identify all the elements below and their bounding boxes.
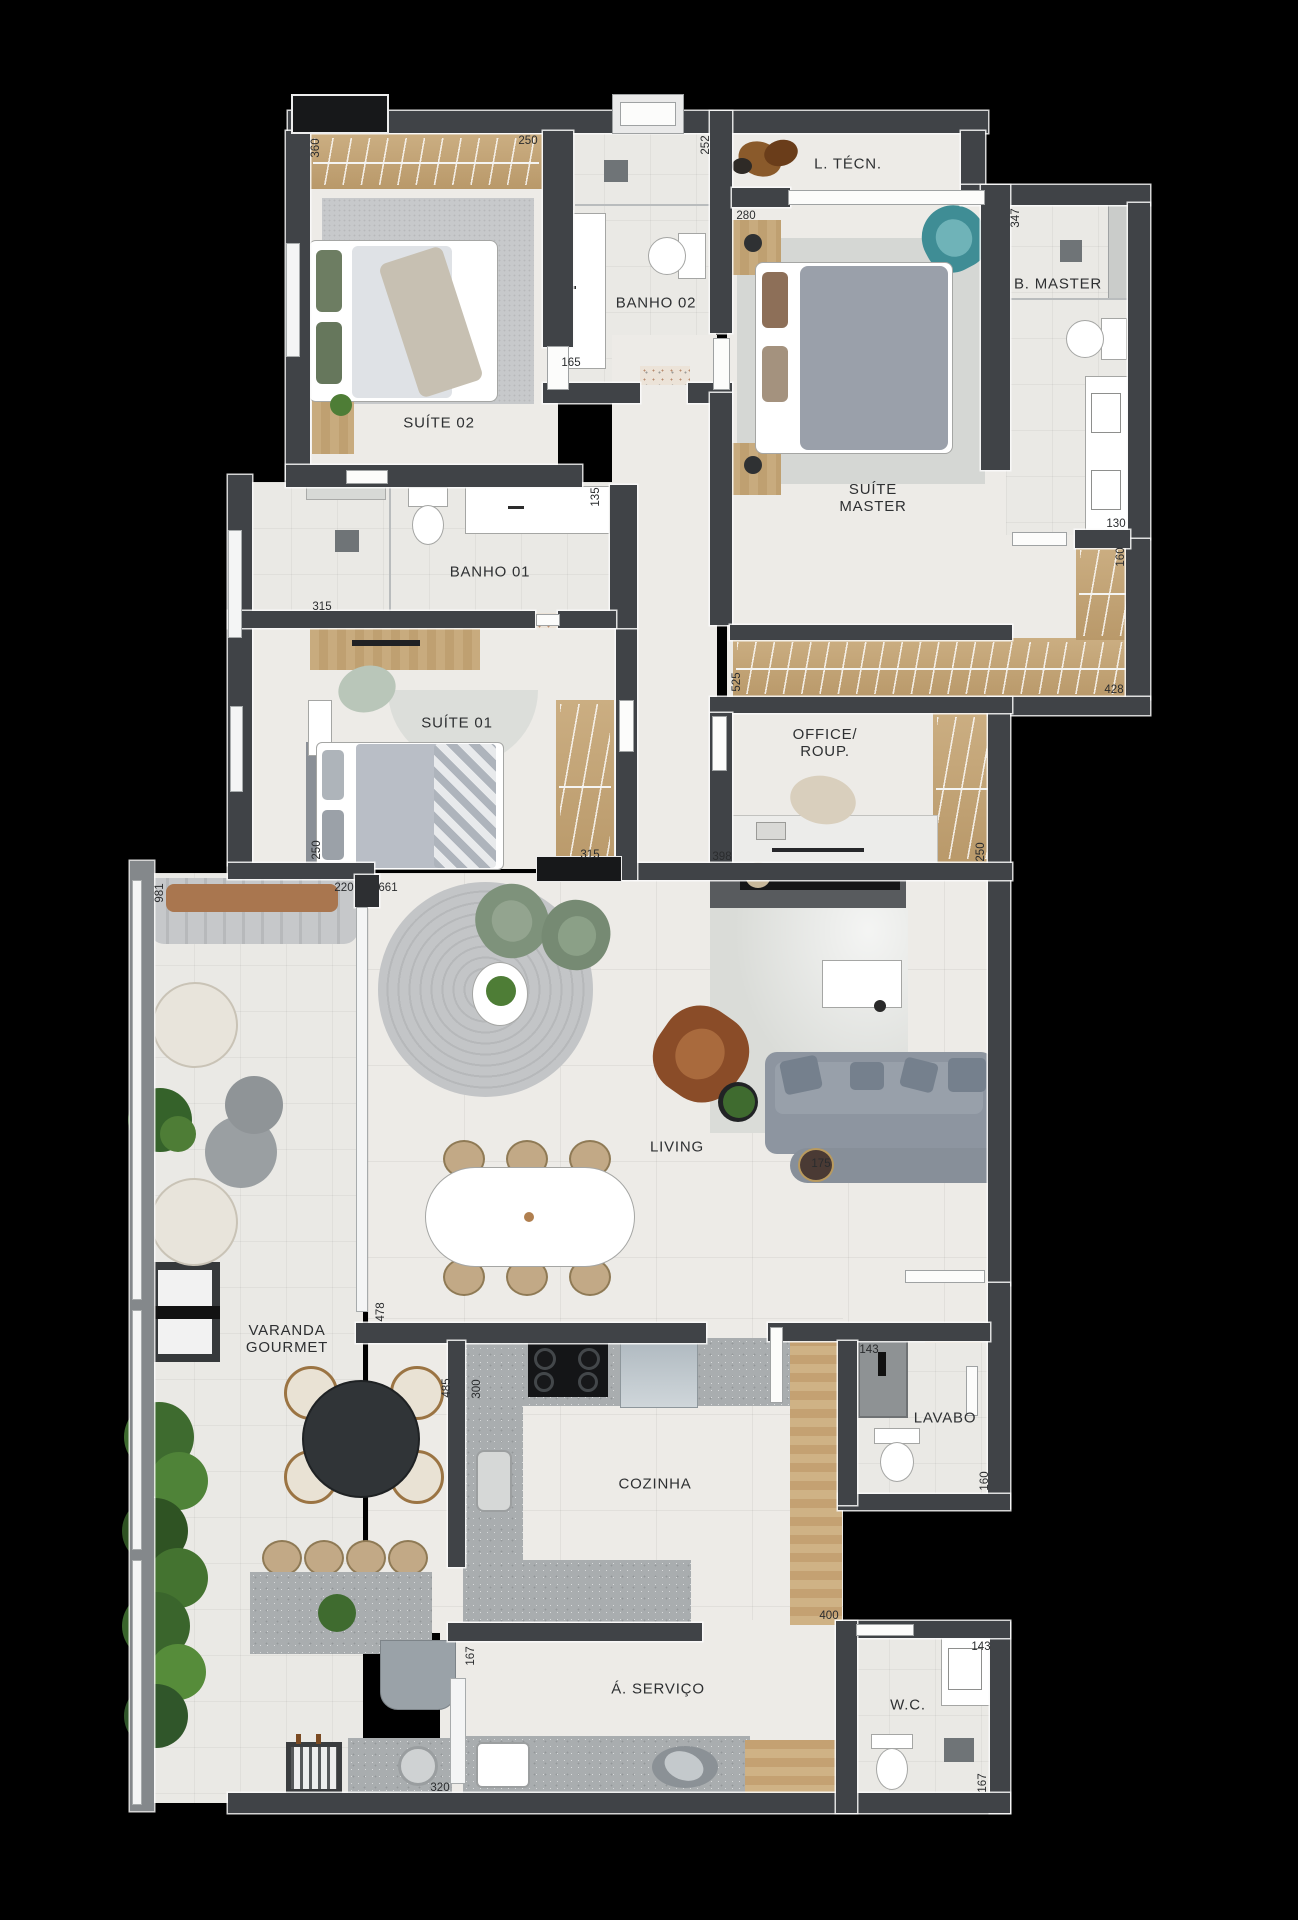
- plant-suite-02: [330, 394, 352, 416]
- glazing-varanda-2: [132, 1310, 142, 1550]
- room-label-suite-master: SUÍTEMASTER: [839, 481, 906, 516]
- wall-ltecn-stub: [732, 188, 790, 207]
- wardrobe-suite-01: [556, 700, 614, 872]
- shower-head-wc: [944, 1738, 974, 1762]
- round-sink-varanda: [398, 1746, 438, 1786]
- wall-suite02-bottom: [286, 465, 582, 487]
- sofa-pillow-2: [850, 1062, 884, 1090]
- dimension-label: 981: [154, 883, 166, 902]
- door-suite-02: [346, 470, 388, 484]
- wall-banho02-ltecn: [710, 111, 732, 333]
- dimension-label: 315: [580, 849, 599, 861]
- patio-round-table: [302, 1380, 420, 1498]
- wall-lavabo-bottom: [838, 1494, 1010, 1510]
- window-banho-01: [228, 530, 242, 638]
- room-label-suite-02: SUÍTE 02: [403, 414, 474, 431]
- plant-island: [318, 1594, 356, 1632]
- wall-banho01-bottom-b: [558, 611, 616, 628]
- bar-stool-4: [388, 1540, 428, 1576]
- dimension-label: 428: [1104, 684, 1123, 696]
- shower-glass-b-master: [1008, 298, 1132, 300]
- sliding-door-l-tecn: [788, 190, 985, 205]
- dimension-label: 160: [1115, 547, 1127, 566]
- pillow-green-2: [316, 322, 342, 384]
- dimension-label: 347: [1010, 208, 1022, 227]
- dimension-label: 485: [441, 1378, 453, 1397]
- bar-stool-1: [262, 1540, 302, 1576]
- bar-fridge: [380, 1640, 456, 1710]
- toilet-tank-wc: [871, 1734, 913, 1749]
- dimension-label: 160: [979, 1471, 991, 1490]
- door-suite-master: [713, 338, 730, 390]
- centerpiece: [524, 1212, 534, 1222]
- dimension-label: 130: [1106, 518, 1125, 530]
- toilet-b-master: [1066, 320, 1104, 358]
- vanity-banho-01: [465, 486, 610, 534]
- plant-varanda-mid-2: [160, 1116, 196, 1152]
- tanque-sink: [476, 1742, 530, 1788]
- sliding-glass-varanda: [356, 907, 368, 1312]
- monitor-suite-01: [352, 640, 420, 646]
- toilet-banho-02: [648, 237, 686, 275]
- sofa-pillow-4: [948, 1058, 986, 1092]
- floor-plan: SUÍTE 02BANHO 02L. TÉCN.SUÍTEMASTERB. MA…: [0, 0, 1298, 1920]
- room-label-banho-01: BANHO 01: [450, 563, 531, 580]
- dimension-label: 250: [518, 135, 537, 147]
- dimension-label: 165: [561, 357, 580, 369]
- cabinet-varanda-panel-1: [158, 1270, 212, 1306]
- burner-3: [534, 1372, 554, 1392]
- door-kitchen: [770, 1327, 783, 1403]
- dimension-label: 250: [975, 842, 987, 861]
- entry-door: [620, 102, 676, 126]
- dimension-label: 478: [375, 1302, 387, 1321]
- bar-stool-3: [346, 1540, 386, 1576]
- dimension-label: 280: [736, 210, 755, 222]
- wall-right-lower: [988, 1283, 1010, 1508]
- room-label-cozinha: COZINHA: [618, 1475, 691, 1492]
- wall-kitchen-top-a: [356, 1323, 706, 1343]
- monitor-office: [772, 848, 864, 852]
- wood-mat: [745, 1740, 837, 1794]
- wall-lavabo-left: [838, 1341, 857, 1505]
- room-label-varanda-gourmet: VARANDAGOURMET: [246, 1322, 328, 1357]
- dimension-label: 360: [310, 138, 322, 157]
- shower-glass-banho-01: [389, 487, 391, 615]
- toilet-banho-01: [412, 505, 444, 545]
- room-label-l-tecn: L. TÉCN.: [814, 155, 882, 172]
- bar-stool-2: [304, 1540, 344, 1576]
- door-banho-01: [536, 614, 560, 626]
- door-suite-01: [619, 700, 634, 752]
- desk-suite-01: [310, 626, 480, 670]
- wall-bmaster-bottom: [1075, 530, 1130, 548]
- glazing-varanda-1: [132, 880, 142, 1300]
- door-wc: [856, 1624, 914, 1636]
- dimension-label: 167: [465, 1646, 477, 1665]
- wall-servico-top: [448, 1623, 702, 1641]
- wall-hall-left: [616, 626, 637, 880]
- wall-living-top: [635, 863, 1012, 880]
- shower-head-b-master: [1060, 240, 1082, 262]
- structural-column: [291, 94, 389, 134]
- kitchen-counter-bottom: [463, 1560, 691, 1622]
- lamp-1: [744, 234, 762, 252]
- kitchen-sink: [476, 1450, 512, 1512]
- sink-b-master-2: [1091, 470, 1121, 510]
- dimension-label: 250: [311, 840, 323, 859]
- duvet-suite-master: [800, 266, 948, 450]
- sink-b-master-1: [1091, 393, 1121, 433]
- pillow-master-2: [762, 346, 788, 402]
- door-b-master: [1012, 532, 1067, 546]
- door-hall-lavabo: [905, 1270, 985, 1283]
- burner-1: [534, 1348, 556, 1370]
- stone-table-1: [225, 1076, 283, 1134]
- dimension-label: 220: [334, 882, 353, 894]
- shower-fixture-lavabo: [878, 1352, 886, 1376]
- wall-hall-master: [710, 393, 732, 625]
- shower-glass-banho-02: [575, 204, 712, 206]
- dimension-label: 135: [590, 487, 602, 506]
- glass-partition-servico: [450, 1678, 466, 1784]
- chevron-throw-suite-01: [434, 744, 496, 868]
- toilet-tank-b-master: [1101, 318, 1127, 360]
- grill-handle-1: [296, 1734, 301, 1744]
- floor-lamp: [874, 1000, 886, 1012]
- wall-banho01-right: [610, 485, 637, 628]
- lamp-2: [744, 456, 762, 474]
- pillow-suite-01-b: [322, 810, 344, 860]
- dimension-label: 661: [378, 882, 397, 894]
- wardrobe-office: [933, 713, 991, 863]
- wall-kitchen-left: [448, 1341, 465, 1567]
- dimension-label: 400: [819, 1610, 838, 1622]
- plant-living: [723, 1086, 755, 1118]
- wall-suite02-banho02: [543, 131, 573, 347]
- wall-right-mid: [988, 711, 1010, 1285]
- grill-handle-2: [316, 1734, 321, 1744]
- cabinet-varanda-bar: [150, 1306, 220, 1319]
- faucet-banho-01: [508, 506, 524, 509]
- room-label-b-master: B. MASTER: [1014, 275, 1102, 292]
- dimension-label: 143: [971, 1641, 990, 1653]
- wall-master-bmaster: [981, 185, 1010, 470]
- dog-tail: [732, 158, 752, 174]
- dimension-label: 320: [430, 1782, 449, 1794]
- barbecue-grill: [286, 1742, 342, 1794]
- wall-step-topright: [961, 131, 985, 191]
- mosaic-threshold-1: [640, 366, 690, 385]
- wall-kitchen-top-b: [768, 1323, 990, 1341]
- toilet-tank-banho-01: [408, 487, 448, 507]
- column-living-top: [536, 856, 622, 882]
- wall-right-upper: [1128, 203, 1150, 539]
- plant-side-table: [486, 976, 516, 1006]
- dimension-label: 525: [731, 672, 743, 691]
- wall-closet-bottom: [988, 697, 1150, 715]
- shower-head-banho-01: [335, 530, 359, 552]
- wall-right-closet: [1126, 539, 1150, 699]
- room-label-banho-02: BANHO 02: [616, 294, 697, 311]
- dimension-label: 315: [312, 601, 331, 613]
- wall-wc-right: [990, 1623, 1010, 1813]
- dimension-label: 300: [471, 1379, 483, 1398]
- room-label-living: LIVING: [650, 1138, 704, 1155]
- toilet-wc: [876, 1748, 908, 1790]
- door-office: [712, 716, 727, 771]
- dimension-label: 175: [811, 1158, 830, 1170]
- fridge: [620, 1336, 698, 1408]
- dimension-label: 167: [977, 1773, 989, 1792]
- wall-banho01-bottom-a: [228, 611, 535, 628]
- wardrobe-closet-long: [733, 638, 1130, 698]
- burner-4: [578, 1372, 598, 1392]
- room-label-wc: W.C.: [890, 1696, 926, 1713]
- pillow-green-1: [316, 250, 342, 312]
- room-label-suite-01: SUÍTE 01: [421, 714, 492, 731]
- sink-wc: [948, 1648, 982, 1690]
- pillow-master-1: [762, 272, 788, 328]
- room-label-office-roup: OFFICE/ROUP.: [793, 726, 858, 761]
- tall-cabinet: [790, 1340, 842, 1625]
- laptop-office: [756, 822, 786, 840]
- burner-2: [578, 1348, 600, 1370]
- column-partition: [355, 875, 379, 907]
- dimension-label: 252: [700, 135, 712, 154]
- pillow-suite-01-a: [322, 750, 344, 800]
- window-suite-01: [230, 706, 243, 792]
- cabinet-varanda-panel-2: [158, 1318, 212, 1354]
- wall-wc-left: [836, 1621, 857, 1813]
- glazing-varanda-3: [132, 1560, 142, 1805]
- shower-head-banho-02: [604, 160, 628, 182]
- wall-closet-office: [710, 697, 1012, 713]
- wall-bottom: [228, 1793, 1010, 1813]
- dimension-label: 398: [712, 851, 731, 863]
- wardrobe-suite-02: [310, 134, 542, 189]
- window-suite-02: [286, 243, 300, 357]
- room-label-a-servico: Á. SERVIÇO: [611, 1680, 705, 1697]
- shelf-banho-01: [306, 486, 386, 500]
- wall-master-bottom: [730, 625, 1012, 640]
- bench-cushion: [166, 884, 338, 912]
- wall-suite01-bottom: [228, 863, 374, 879]
- room-label-lavabo: LAVABO: [914, 1409, 977, 1426]
- toilet-lavabo: [880, 1442, 914, 1482]
- dimension-label: 143: [859, 1344, 878, 1356]
- coffee-table: [822, 960, 902, 1008]
- duvet-suite-01: [356, 744, 440, 868]
